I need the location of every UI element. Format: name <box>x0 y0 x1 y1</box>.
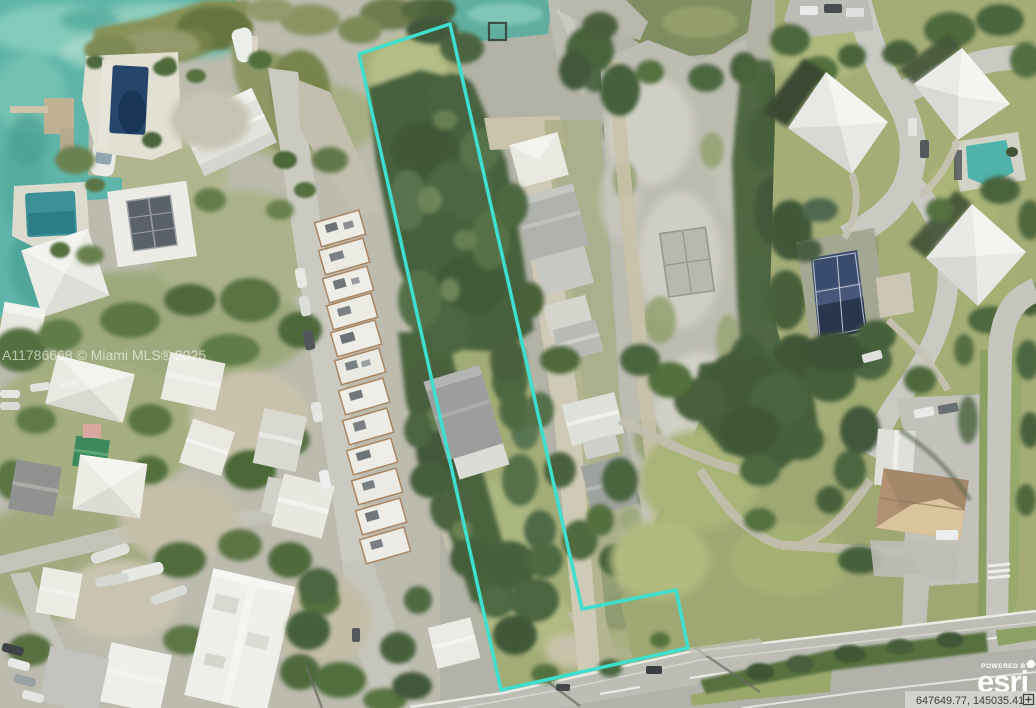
svg-text:A11786668 © Miami MLS® 2025: A11786668 © Miami MLS® 2025 <box>2 347 206 363</box>
svg-text:647649.77, 145035.41: 647649.77, 145035.41 <box>916 695 1024 707</box>
